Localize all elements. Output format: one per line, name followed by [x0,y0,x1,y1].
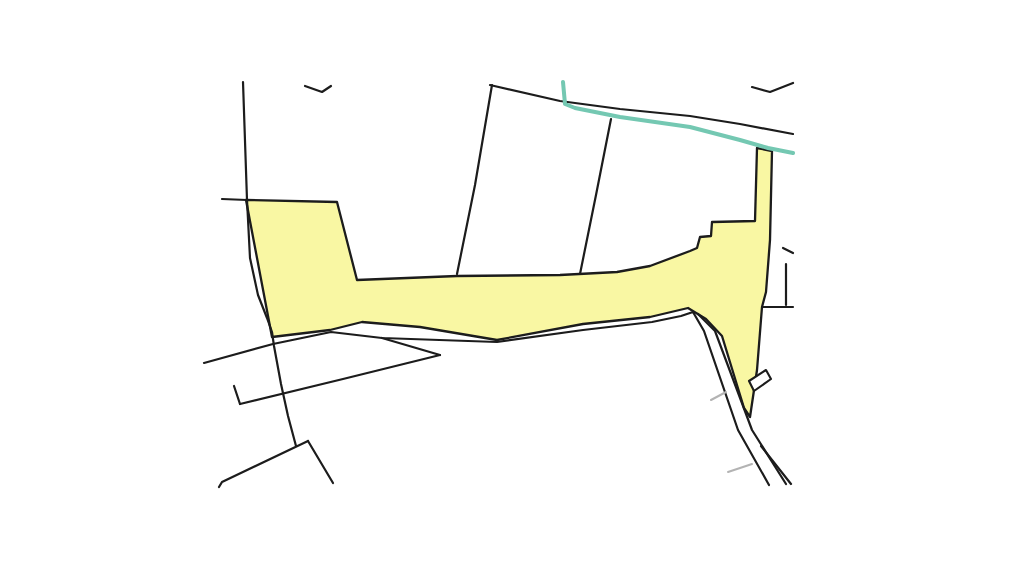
boundary-lambda-left [219,441,308,487]
boundary-top-stub [222,199,247,200]
track-tick [728,464,752,472]
stream-line [563,82,793,153]
boundary-wedge-lower [240,355,440,404]
boundary-mid-west [457,85,492,274]
boundary-lambda-right [308,441,333,483]
track-tick [711,392,726,400]
boundary-edge-fragment [783,248,793,253]
boundary-mid-east [580,119,611,274]
boundary-road-north [490,85,793,134]
highlighted-parcel [246,148,772,417]
cadastral-map-image [0,0,1011,570]
boundary-wedge-spur [234,386,240,404]
boundary-check-mark [305,86,331,92]
boundary-top-right-arc [752,83,793,92]
map-canvas [0,0,1011,570]
